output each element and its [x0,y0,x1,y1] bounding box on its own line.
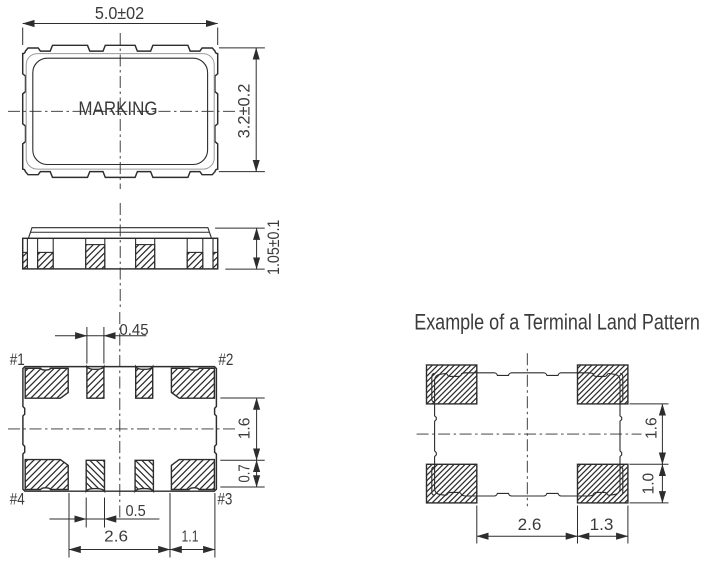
svg-text:#1: #1 [10,350,25,369]
svg-text:3.2±0.2: 3.2±0.2 [234,84,253,139]
svg-text:#3: #3 [217,490,232,509]
svg-text:2.6: 2.6 [104,529,128,546]
svg-text:#4: #4 [10,490,25,509]
svg-text:Example of a Terminal Land Pat: Example of a Terminal Land Pattern [414,309,700,334]
svg-text:1.6: 1.6 [644,417,661,439]
svg-text:#2: #2 [218,350,233,369]
svg-text:1.3: 1.3 [590,516,614,534]
svg-text:0.5: 0.5 [125,503,145,520]
svg-text:5.0±02: 5.0±02 [95,3,144,23]
svg-text:1.1: 1.1 [182,529,199,546]
svg-text:1.0: 1.0 [641,473,658,495]
svg-text:0.45: 0.45 [119,322,148,339]
svg-text:1.05±0.1: 1.05±0.1 [264,220,283,275]
svg-text:MARKING: MARKING [78,98,157,120]
svg-text:0.7: 0.7 [237,464,254,482]
svg-text:2.6: 2.6 [518,516,542,534]
svg-text:1.6: 1.6 [237,418,254,440]
